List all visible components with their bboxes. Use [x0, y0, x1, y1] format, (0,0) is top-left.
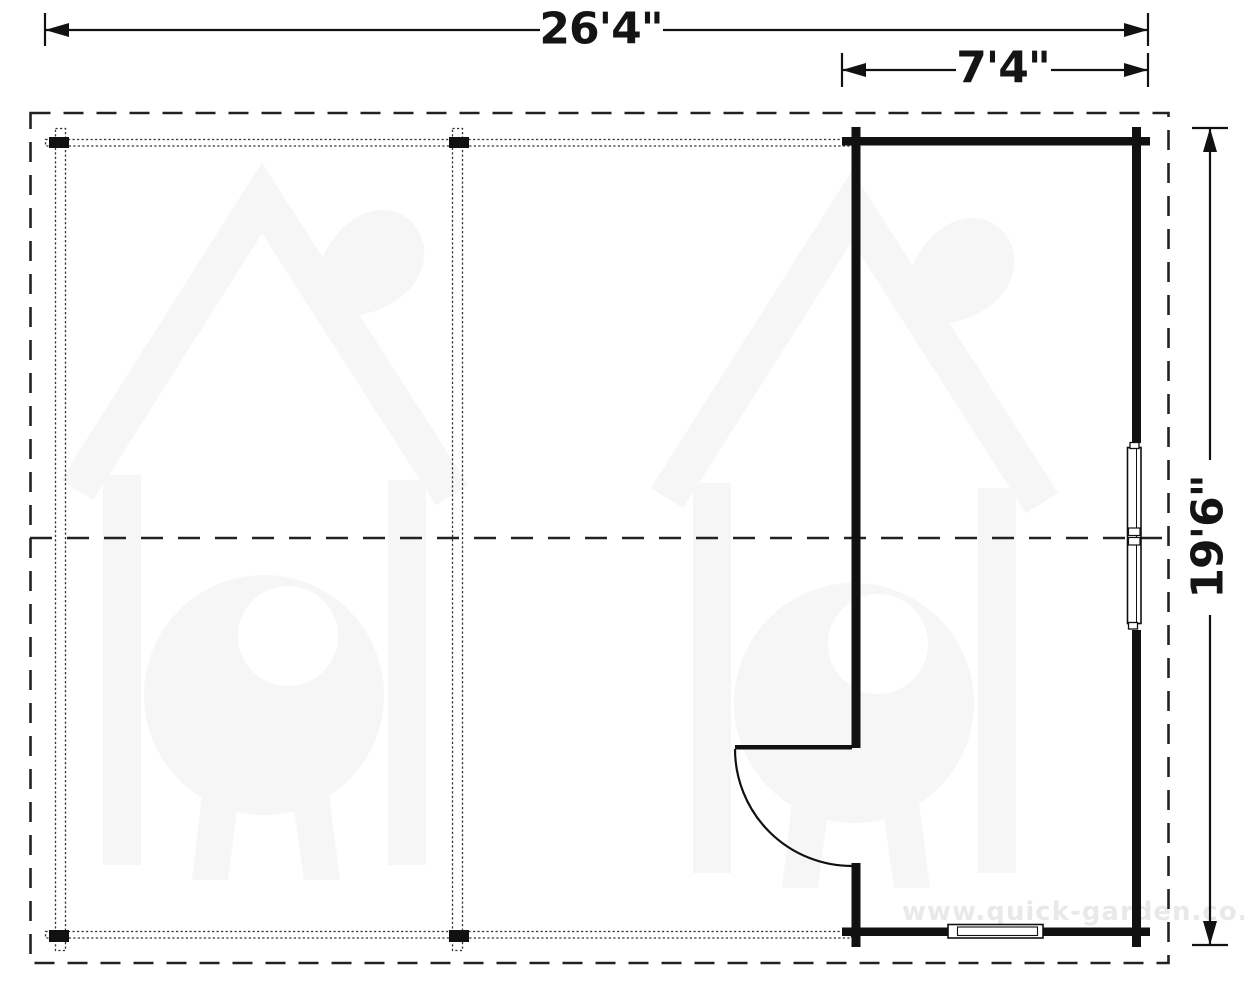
floorplan-drawing — [0, 0, 1244, 1000]
arrow-right-icon — [1124, 63, 1148, 77]
beam-bottom — [46, 932, 852, 939]
wall-top — [842, 137, 1150, 146]
dimension-annex-width-label: 7'4" — [956, 43, 1050, 94]
dimension-overall-width-label: 26'4" — [539, 4, 662, 55]
door-leaf — [735, 745, 852, 750]
wall-right-upper — [1132, 127, 1141, 443]
wall-right-lower — [1132, 630, 1141, 947]
arrow-up-icon — [1203, 128, 1217, 152]
window-bottom-wall — [948, 925, 1043, 939]
arrow-left-icon — [842, 63, 866, 77]
dimension-depth-label: 19'6" — [1183, 475, 1234, 598]
window-right-wall — [1128, 443, 1142, 630]
wall-left-upper — [852, 127, 861, 748]
post-top-left — [49, 137, 69, 148]
post-top-middle — [449, 137, 469, 148]
arrow-left-icon — [45, 23, 69, 37]
arrow-down-icon — [1203, 921, 1217, 945]
post-bottom-left — [49, 930, 69, 942]
wall-left-lower — [852, 863, 861, 947]
beam-middle — [453, 129, 463, 951]
house-logo-watermark — [77, 198, 1042, 888]
beam-top — [46, 140, 852, 147]
arrow-right-icon — [1124, 23, 1148, 37]
beam-left — [56, 129, 66, 951]
post-bottom-middle — [449, 930, 469, 942]
floorplan-canvas: www.quick-garden.co.uk — [0, 0, 1244, 1000]
